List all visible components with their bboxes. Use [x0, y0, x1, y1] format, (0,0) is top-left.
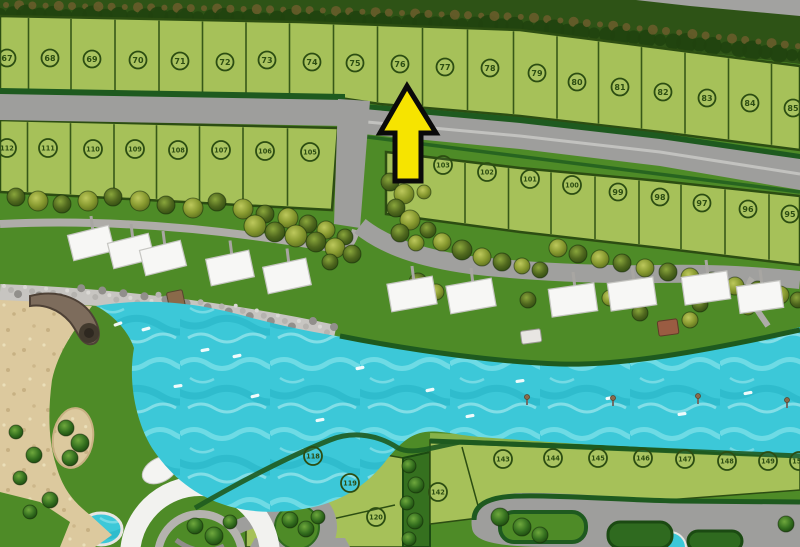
lot-number: 120 — [369, 513, 383, 521]
lot-marker-97[interactable]: 97 — [694, 195, 711, 212]
lot-number: 142 — [431, 488, 445, 496]
lot-marker-105[interactable]: 105 — [301, 143, 319, 161]
lot-marker-145[interactable]: 145 — [589, 449, 607, 467]
lot-number: 150 — [792, 457, 800, 465]
tree — [265, 222, 285, 242]
lot-marker-149[interactable]: 149 — [759, 452, 777, 470]
lot-marker-68[interactable]: 68 — [42, 50, 59, 67]
lot-marker-111[interactable]: 111 — [39, 139, 57, 157]
lot-number: 100 — [565, 181, 579, 189]
tree — [306, 232, 326, 252]
lot-marker-109[interactable]: 109 — [126, 140, 144, 158]
lot-number: 103 — [436, 161, 450, 169]
lot-number: 111 — [41, 144, 55, 152]
lot-number: 146 — [636, 454, 650, 462]
cabana — [548, 283, 597, 317]
lot-marker-146[interactable]: 146 — [634, 449, 652, 467]
lot-marker-69[interactable]: 69 — [84, 51, 101, 68]
lot-number: 75 — [349, 59, 361, 68]
lot-number: 76 — [394, 60, 406, 69]
lot-marker-108[interactable]: 108 — [169, 141, 187, 159]
lot-marker-77[interactable]: 77 — [437, 59, 454, 76]
lot-number: 109 — [128, 145, 142, 153]
tree — [682, 312, 698, 328]
lot-number: 148 — [720, 457, 734, 465]
tree — [23, 505, 37, 519]
tree — [7, 188, 25, 206]
tree — [591, 250, 609, 268]
lot-marker-118[interactable]: 118 — [304, 447, 322, 465]
lot-marker-83[interactable]: 83 — [699, 90, 716, 107]
tree — [408, 235, 424, 251]
lot-marker-74[interactable]: 74 — [304, 54, 321, 71]
lot-marker-78[interactable]: 78 — [482, 60, 499, 77]
tree — [71, 434, 89, 452]
tree — [402, 459, 416, 473]
tree — [520, 292, 536, 308]
lot-number: 85 — [787, 104, 799, 113]
lot-number: 69 — [86, 55, 98, 64]
lot-number: 108 — [171, 146, 185, 154]
lot-marker-100[interactable]: 100 — [563, 176, 581, 194]
lot-marker-102[interactable]: 102 — [478, 163, 496, 181]
lot-number: 79 — [531, 69, 543, 78]
lot-marker-99[interactable]: 99 — [610, 184, 627, 201]
lot-number: 80 — [571, 78, 583, 87]
tree — [613, 254, 631, 272]
lot-number: 72 — [219, 58, 230, 67]
tree — [78, 191, 98, 211]
lot-number: 84 — [744, 99, 756, 108]
tree — [53, 195, 71, 213]
cabana — [607, 277, 656, 311]
lot-number: 145 — [591, 454, 605, 462]
lot-marker-73[interactable]: 73 — [259, 52, 276, 69]
lot-number: 101 — [523, 175, 537, 183]
tree — [26, 447, 42, 463]
lot-number: 83 — [701, 94, 712, 103]
lot-marker-95[interactable]: 95 — [782, 206, 799, 223]
tree — [104, 188, 122, 206]
tree — [491, 508, 509, 526]
tree — [58, 420, 74, 436]
tree — [298, 521, 314, 537]
tree — [62, 450, 78, 466]
tree — [42, 492, 58, 508]
hedged-court-1 — [608, 522, 672, 547]
lot-number: 97 — [696, 199, 707, 208]
lot-marker-107[interactable]: 107 — [212, 141, 230, 159]
lot-marker-120[interactable]: 120 — [367, 508, 385, 526]
lot-number: 96 — [742, 205, 754, 214]
lot-number: 144 — [546, 454, 560, 462]
lot-marker-147[interactable]: 147 — [676, 450, 694, 468]
tree — [433, 233, 451, 251]
lot-marker-71[interactable]: 71 — [172, 53, 189, 70]
lot-marker-143[interactable]: 143 — [494, 450, 512, 468]
tree — [532, 262, 548, 278]
lot-marker-72[interactable]: 72 — [217, 54, 234, 71]
lot-number: 119 — [343, 479, 357, 487]
tree — [285, 225, 307, 247]
lot-number: 95 — [784, 210, 796, 219]
tree — [28, 191, 48, 211]
tree — [223, 515, 237, 529]
lot-marker-96[interactable]: 96 — [740, 201, 757, 218]
tree — [569, 245, 587, 263]
lot-marker-75[interactable]: 75 — [347, 55, 364, 72]
tree — [9, 425, 23, 439]
lot-marker-101[interactable]: 101 — [521, 170, 539, 188]
tree — [407, 513, 423, 529]
lot-number: 106 — [258, 147, 272, 155]
tree — [400, 496, 414, 510]
tree — [244, 215, 266, 237]
lot-number: 110 — [86, 145, 100, 153]
lot-marker-85[interactable]: 85 — [785, 100, 800, 117]
tree — [659, 263, 677, 281]
lot-marker-148[interactable]: 148 — [718, 452, 736, 470]
tree — [343, 245, 361, 263]
lot-marker-119[interactable]: 119 — [341, 474, 359, 492]
lot-number: 81 — [614, 83, 626, 92]
lot-number: 82 — [657, 88, 668, 97]
tree — [391, 224, 409, 242]
lot-number: 102 — [480, 168, 494, 176]
tree — [322, 254, 338, 270]
lot-marker-110[interactable]: 110 — [84, 140, 102, 158]
lot-marker-67[interactable]: 67 — [0, 50, 16, 67]
tree — [205, 527, 223, 545]
lot-marker-82[interactable]: 82 — [655, 84, 672, 101]
bridge-lookout-center — [84, 328, 94, 338]
tree — [408, 477, 424, 493]
cabana — [736, 281, 783, 314]
lot-number: 105 — [303, 148, 317, 156]
lot-number: 99 — [612, 188, 624, 197]
hedged-court-2 — [688, 531, 742, 547]
lot-number: 73 — [261, 56, 272, 65]
tree — [549, 239, 567, 257]
tree — [282, 512, 298, 528]
lot-marker-76[interactable]: 76 — [392, 56, 409, 73]
lot-number: 118 — [306, 452, 320, 460]
lot-marker-112[interactable]: 112 — [0, 139, 16, 157]
tree — [183, 198, 203, 218]
lot-number: 143 — [496, 455, 510, 463]
lot-marker-79[interactable]: 79 — [529, 65, 546, 82]
lot-marker-84[interactable]: 84 — [742, 95, 759, 112]
tree — [636, 259, 654, 277]
lot-marker-144[interactable]: 144 — [544, 449, 562, 467]
tree — [493, 253, 511, 271]
tree — [473, 248, 491, 266]
lot-number: 77 — [439, 63, 450, 72]
tree — [417, 185, 431, 199]
lot-marker-70[interactable]: 70 — [130, 52, 147, 69]
lot-marker-98[interactable]: 98 — [652, 189, 669, 206]
tree — [514, 258, 530, 274]
site-plan-canvas: 6768697071727374757677787980818283848511… — [0, 0, 800, 547]
cabana — [681, 271, 730, 305]
lot-number: 71 — [174, 57, 186, 66]
tree — [402, 532, 416, 546]
lot-number: 68 — [44, 54, 56, 63]
tree — [157, 196, 175, 214]
lot-number: 67 — [1, 54, 12, 63]
lot-number: 112 — [0, 144, 14, 152]
lot-number: 78 — [484, 64, 496, 73]
tree — [13, 471, 27, 485]
lot-number: 70 — [132, 56, 144, 65]
tree — [420, 222, 436, 238]
lot-marker-142[interactable]: 142 — [429, 483, 447, 501]
tree — [513, 518, 531, 536]
tree — [532, 527, 548, 543]
lot-number: 74 — [306, 58, 318, 67]
lot-marker-103[interactable]: 103 — [434, 156, 452, 174]
lot-marker-150[interactable]: 150 — [790, 452, 800, 470]
site-plan-map: 6768697071727374757677787980818283848511… — [0, 0, 800, 547]
lot-marker-106[interactable]: 106 — [256, 142, 274, 160]
lot-number: 107 — [214, 146, 228, 154]
tree — [311, 510, 325, 524]
tree — [778, 516, 794, 532]
tree — [208, 193, 226, 211]
lot-marker-81[interactable]: 81 — [612, 79, 629, 96]
tree — [452, 240, 472, 260]
lot-number: 149 — [761, 457, 775, 465]
lot-marker-80[interactable]: 80 — [569, 74, 586, 91]
lot-number: 98 — [654, 193, 666, 202]
tree — [130, 191, 150, 211]
lot-number: 147 — [678, 455, 692, 463]
tree — [187, 518, 203, 534]
